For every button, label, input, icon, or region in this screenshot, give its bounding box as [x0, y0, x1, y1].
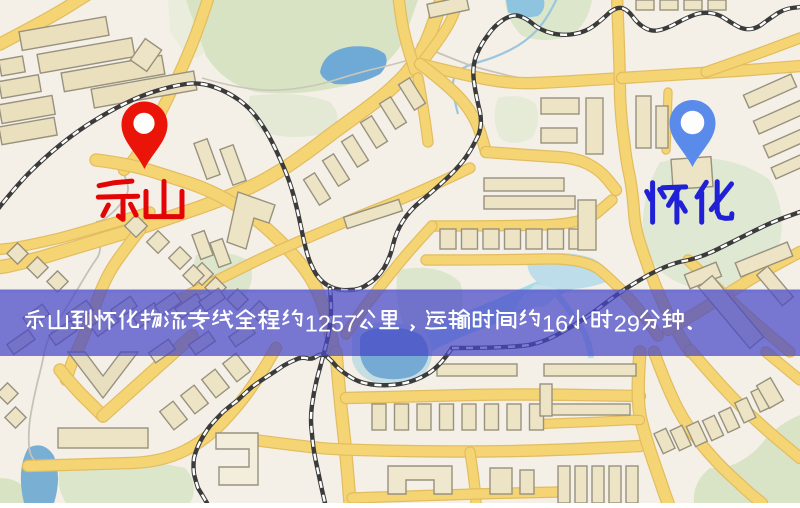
svg-text:16: 16: [542, 311, 568, 337]
svg-text:1257: 1257: [305, 311, 357, 337]
svg-text:29: 29: [614, 311, 640, 337]
